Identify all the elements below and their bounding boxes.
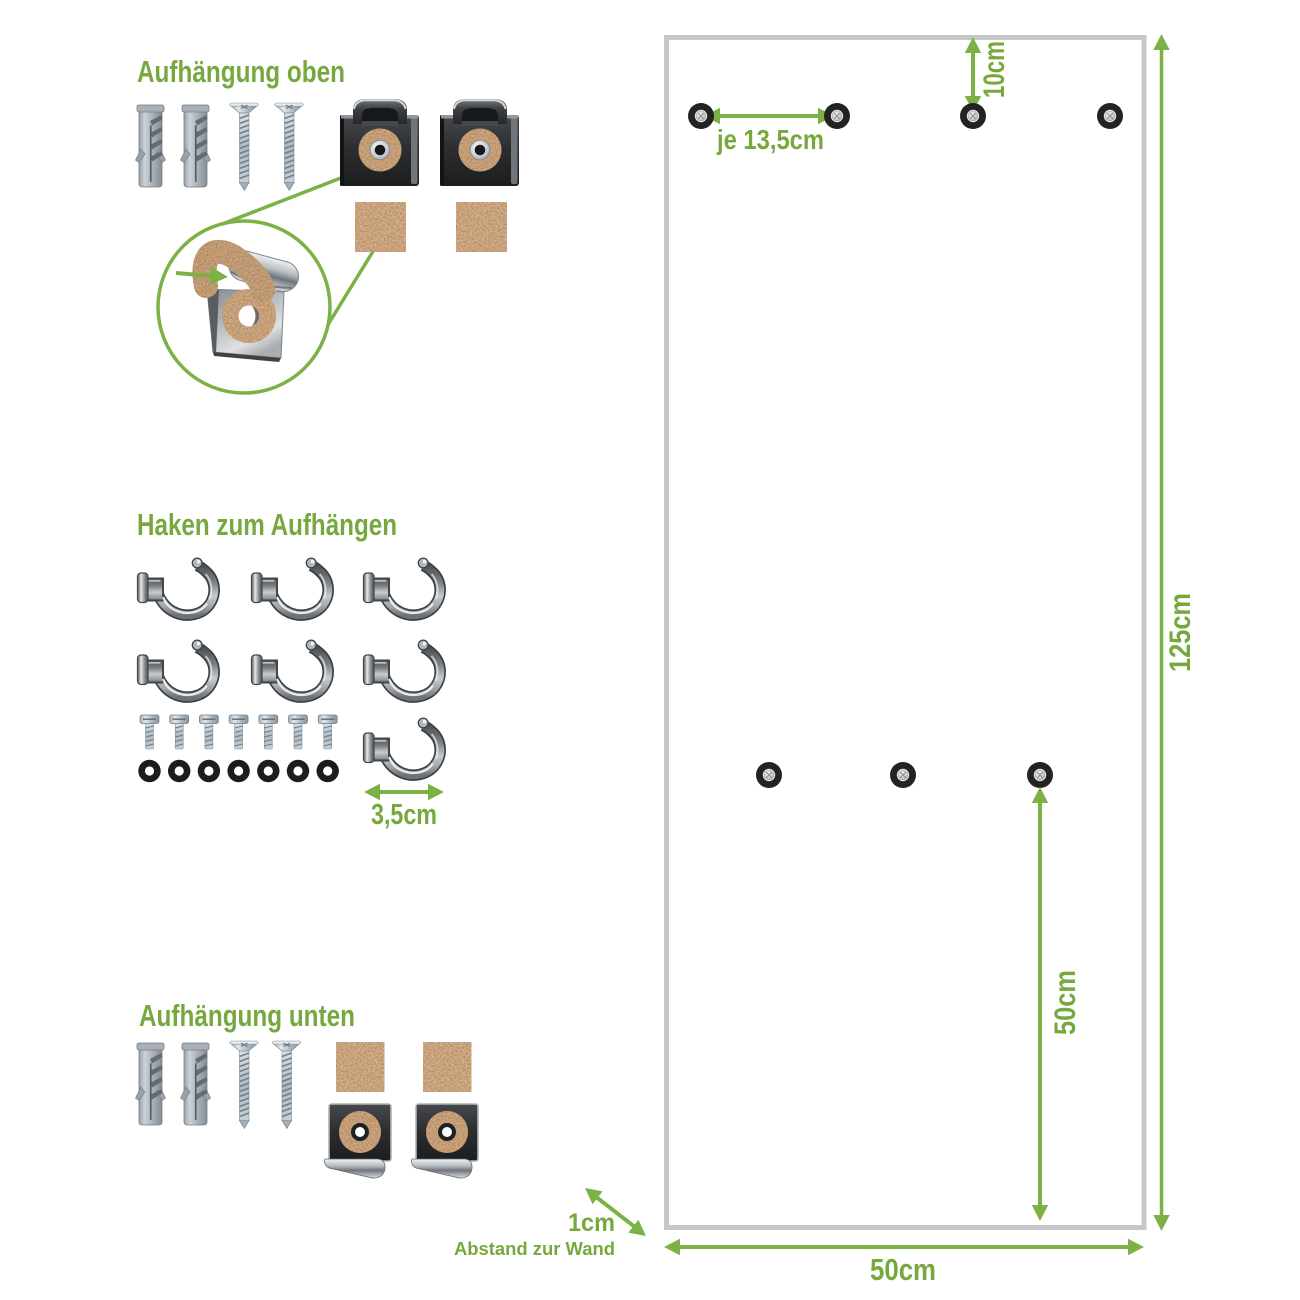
svg-text:je 13,5cm: je 13,5cm (716, 124, 824, 155)
svg-text:3,5cm: 3,5cm (371, 799, 437, 831)
svg-text:1cm: 1cm (568, 1209, 615, 1237)
svg-text:125cm: 125cm (1164, 593, 1197, 672)
svg-text:50cm: 50cm (870, 1252, 936, 1287)
svg-text:Aufhängung unten: Aufhängung unten (139, 998, 355, 1033)
svg-text:Abstand zur Wand: Abstand zur Wand (454, 1239, 615, 1259)
svg-text:10cm: 10cm (978, 41, 1011, 98)
svg-text:50cm: 50cm (1049, 970, 1082, 1035)
svg-text:Aufhängung oben: Aufhängung oben (137, 54, 345, 89)
svg-text:Haken zum Aufhängen: Haken zum Aufhängen (137, 507, 397, 542)
